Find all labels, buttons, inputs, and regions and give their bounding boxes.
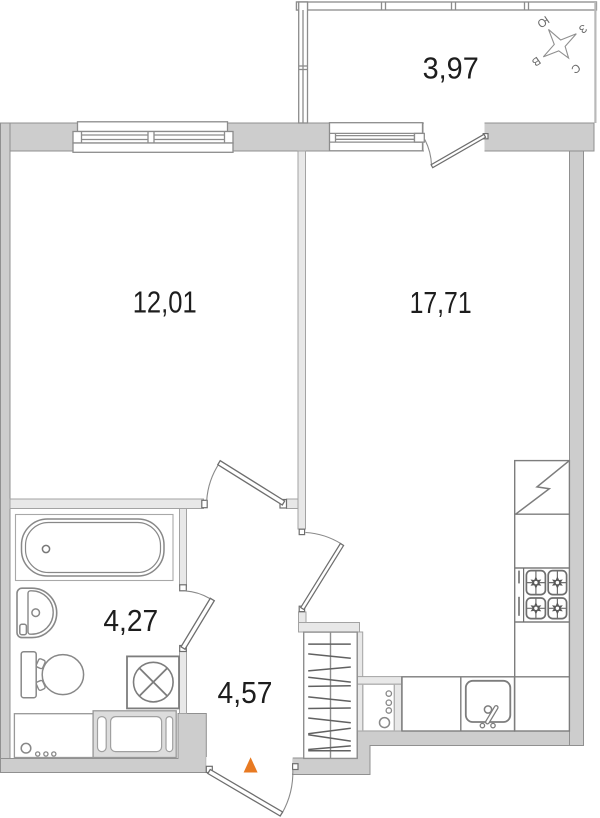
svg-text:17,71: 17,71 [410, 286, 472, 320]
svg-text:4,27: 4,27 [103, 604, 158, 639]
svg-text:3,97: 3,97 [423, 52, 479, 86]
svg-text:4,57: 4,57 [218, 676, 273, 711]
svg-text:12,01: 12,01 [133, 285, 197, 320]
